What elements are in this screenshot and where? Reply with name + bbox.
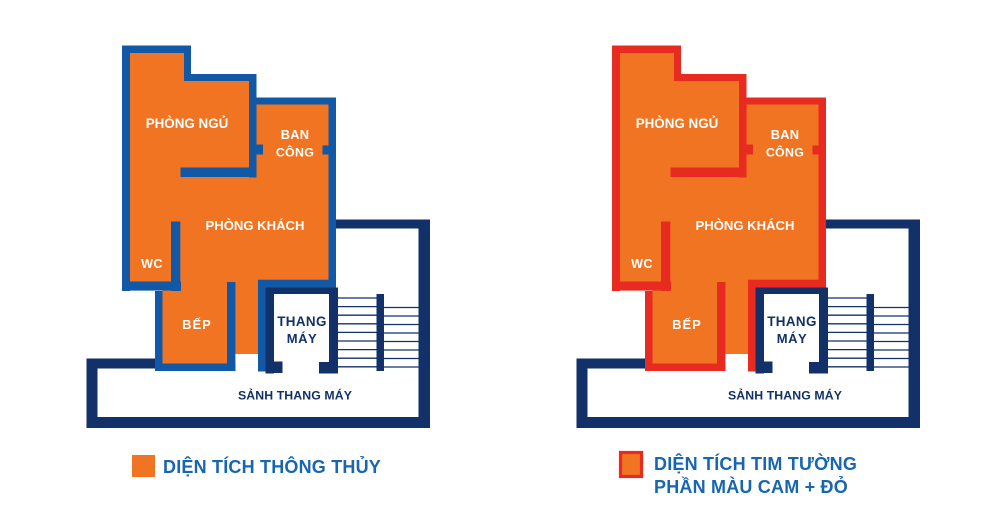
- svg-text:DIỆN TÍCH TIM TƯỜNG: DIỆN TÍCH TIM TƯỜNG: [654, 453, 857, 474]
- svg-text:SẢNH THANG MÁY: SẢNH THANG MÁY: [238, 388, 352, 403]
- svg-text:THANG: THANG: [277, 314, 327, 329]
- svg-text:CÔNG: CÔNG: [276, 145, 314, 160]
- svg-text:SẢNH THANG MÁY: SẢNH THANG MÁY: [728, 388, 842, 403]
- svg-text:WC: WC: [631, 257, 653, 271]
- svg-text:PHÒNG NGỦ: PHÒNG NGỦ: [146, 116, 229, 131]
- svg-text:PHÒNG KHÁCH: PHÒNG KHÁCH: [696, 218, 795, 233]
- svg-text:THANG: THANG: [767, 314, 817, 329]
- svg-text:PHẦN MÀU CAM + ĐỎ: PHẦN MÀU CAM + ĐỎ: [654, 476, 848, 497]
- svg-text:WC: WC: [141, 257, 163, 271]
- svg-text:MÁY: MÁY: [287, 331, 317, 346]
- svg-text:BẾP: BẾP: [182, 317, 212, 332]
- svg-text:BAN: BAN: [771, 127, 800, 142]
- svg-text:BẾP: BẾP: [672, 317, 702, 332]
- svg-text:CÔNG: CÔNG: [766, 145, 804, 160]
- svg-text:MÁY: MÁY: [777, 331, 807, 346]
- svg-text:DIỆN TÍCH THÔNG THỦY: DIỆN TÍCH THÔNG THỦY: [163, 456, 381, 477]
- svg-text:PHÒNG NGỦ: PHÒNG NGỦ: [636, 116, 719, 131]
- svg-text:PHÒNG KHÁCH: PHÒNG KHÁCH: [206, 218, 305, 233]
- svg-text:BAN: BAN: [281, 127, 310, 142]
